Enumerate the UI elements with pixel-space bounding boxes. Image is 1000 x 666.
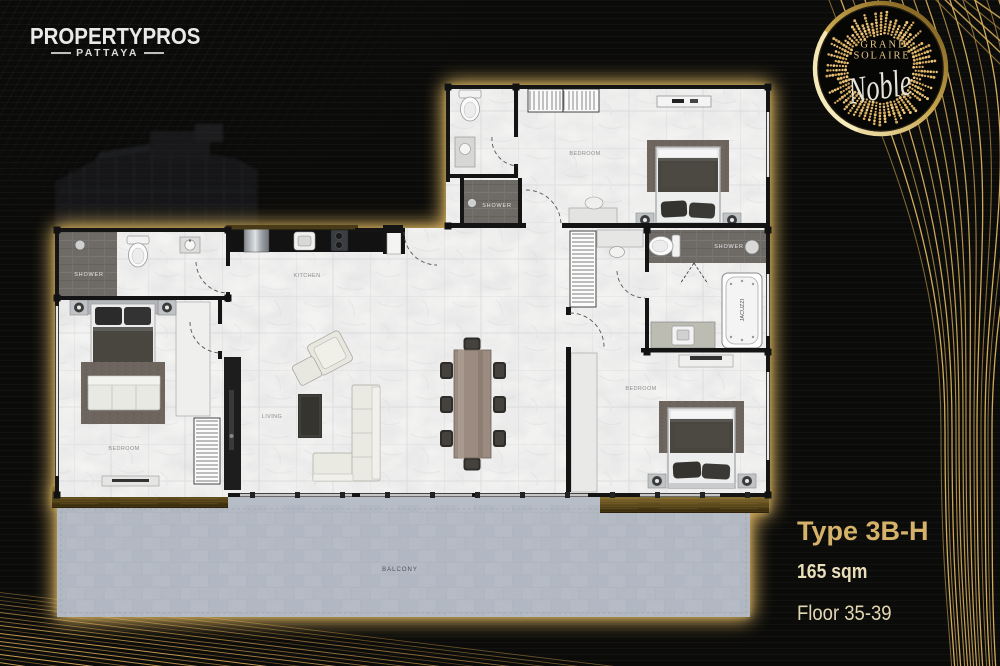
svg-text:SOLAIRE: SOLAIRE <box>854 51 911 62</box>
svg-text:KITCHEN: KITCHEN <box>294 273 321 279</box>
svg-text:SHOWER: SHOWER <box>74 272 104 278</box>
svg-text:LIVING: LIVING <box>262 414 282 420</box>
svg-text:SHOWER: SHOWER <box>714 244 744 250</box>
svg-text:BALCONY: BALCONY <box>382 567 418 573</box>
svg-text:GRAND: GRAND <box>860 40 907 51</box>
svg-text:BEDROOM: BEDROOM <box>108 446 139 452</box>
svg-text:BEDROOM: BEDROOM <box>569 151 600 157</box>
svg-text:BEDROOM: BEDROOM <box>625 386 656 392</box>
svg-text:SHOWER: SHOWER <box>482 203 512 209</box>
svg-text:JACUZZI: JACUZZI <box>740 298 746 321</box>
